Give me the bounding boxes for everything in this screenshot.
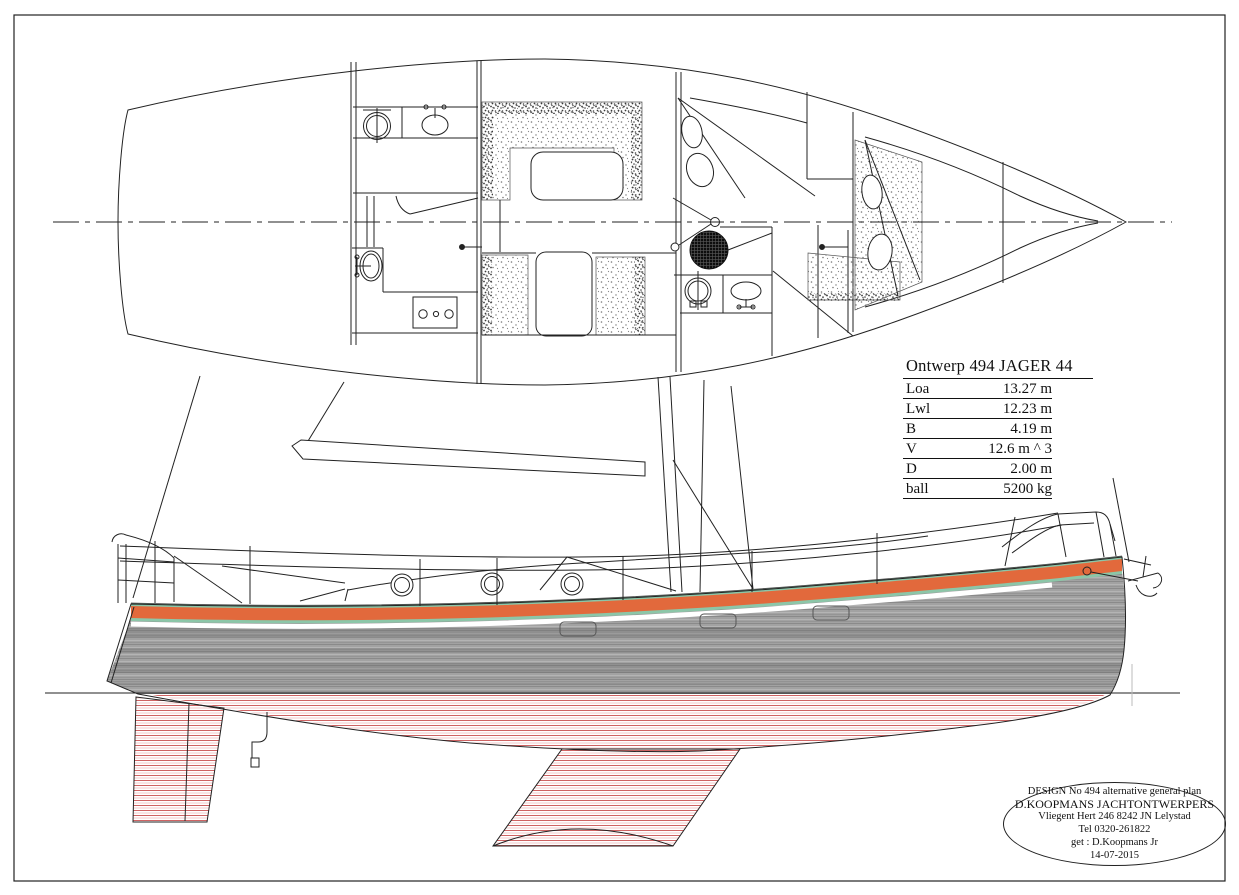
crosshatch-circle	[690, 231, 728, 269]
spec-label: V	[906, 441, 917, 458]
prop-strut	[252, 712, 267, 758]
title-block-line-2: D.KOOPMANS JACHTONTWERPERS	[1004, 798, 1225, 811]
mast	[658, 377, 671, 592]
spec-value: 2.00 m	[1010, 461, 1052, 478]
spec-value: 5200 kg	[1003, 481, 1052, 498]
title-block-line-6: 14-07-2015	[1004, 850, 1225, 863]
stern-pulpit	[112, 534, 242, 603]
spec-label: D	[906, 461, 917, 478]
spec-row-beam: B 4.19 m	[903, 419, 1052, 439]
spec-value: 12.23 m	[1003, 401, 1052, 418]
drawing-sheet: Ontwerp 494 JAGER 44 Loa 13.27 m Lwl 12.…	[0, 0, 1239, 895]
spec-value: 4.19 m	[1010, 421, 1052, 438]
salon-table	[531, 152, 623, 200]
underwater-body	[142, 693, 1108, 752]
forestay	[1113, 478, 1129, 562]
spec-table: Ontwerp 494 JAGER 44 Loa 13.27 m Lwl 12.…	[903, 356, 1093, 499]
spec-label: Loa	[906, 381, 929, 398]
spec-row-draft: D 2.00 m	[903, 459, 1052, 479]
spec-row-lwl: Lwl 12.23 m	[903, 399, 1052, 419]
plan-view	[53, 59, 1172, 385]
title-block-line-4: Tel 0320-261822	[1004, 824, 1225, 837]
spec-label: B	[906, 421, 916, 438]
title-block-line-3: Vliegent Hert 246 8242 JN Lelystad	[1004, 811, 1225, 824]
spec-row-loa: Loa 13.27 m	[903, 379, 1052, 399]
rudder	[133, 697, 224, 822]
spec-value: 13.27 m	[1003, 381, 1052, 398]
v-berth	[855, 140, 922, 310]
title-block: DESIGN No 494 alternative general plan D…	[1003, 782, 1226, 866]
spec-value: 12.6 m ^ 3	[988, 441, 1052, 458]
backstay	[133, 376, 200, 598]
spec-label: Lwl	[906, 401, 930, 418]
title-block-line-5: get : D.Koopmans Jr	[1004, 837, 1225, 850]
spec-row-ballast: ball 5200 kg	[903, 479, 1052, 499]
boom	[292, 440, 645, 476]
spec-table-title: Ontwerp 494 JAGER 44	[903, 356, 1093, 379]
spec-label: ball	[906, 481, 929, 498]
spec-row-volume: V 12.6 m ^ 3	[903, 439, 1052, 459]
